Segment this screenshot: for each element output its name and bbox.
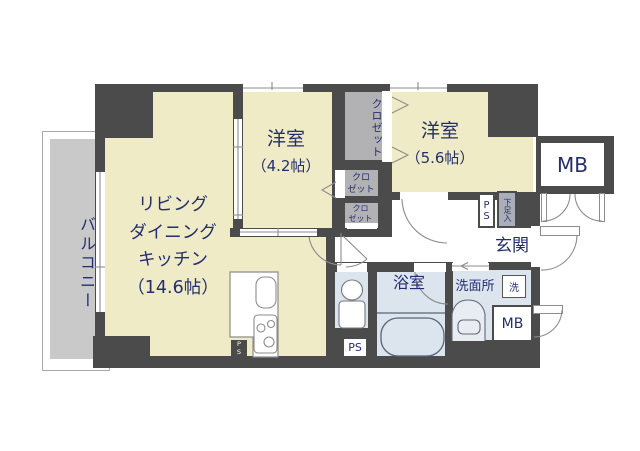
mb-top-label: MB xyxy=(557,153,588,177)
balcony-label: バルコニー xyxy=(51,183,95,343)
ps-entrance-p: P xyxy=(483,200,489,211)
mb-top-door-leaf-left xyxy=(541,193,547,222)
mb-bottom-door-leaf xyxy=(533,305,563,314)
wall-bath-washroom xyxy=(445,262,453,358)
bedroom-a-label: 洋室 （4.2帖） xyxy=(236,129,336,175)
mb-bottom-label: MB xyxy=(502,316,524,332)
ldk-line1: リビング xyxy=(92,192,254,220)
wall-top xyxy=(95,84,538,92)
ps-kitchen-label: P S xyxy=(231,341,247,356)
bedroom-b-label: 洋室 （5.6帖） xyxy=(388,121,492,167)
ldk-line3: キッチン xyxy=(92,247,254,275)
ldk-size: （14.6帖） xyxy=(92,275,254,303)
closet-bottom-label: クロ ゼット xyxy=(342,204,379,223)
wall-toilet-bath xyxy=(368,262,377,358)
window-bedroom-a xyxy=(243,84,303,92)
shoe-cabinet-label: 下足入 xyxy=(503,198,511,222)
door-gap-bath xyxy=(414,263,446,272)
door-gap-bedroom-b xyxy=(400,192,448,200)
slide-door-washroom xyxy=(452,263,489,271)
wall-topright-block xyxy=(488,84,538,137)
window-bedroom-b xyxy=(390,84,447,92)
mb-bottom-box: MB xyxy=(492,305,533,342)
ps-entrance-box: P S xyxy=(478,193,495,228)
entrance-door-leaf xyxy=(540,226,580,236)
wall-topleft-block xyxy=(95,84,153,138)
washroom-label: 洗面所 xyxy=(449,280,501,295)
entrance-label: 玄関 xyxy=(486,237,538,257)
closet-mid-label: クロ ゼット xyxy=(344,172,378,196)
shoe-cabinet-box: 下足入 xyxy=(497,191,517,228)
mb-top-box: MB xyxy=(541,143,604,186)
wall-bottom-washroom xyxy=(445,340,540,368)
mb-top-door-leaf-right xyxy=(599,193,605,222)
floorplan: MB P S 下足入 PS MB 洗 P S xyxy=(0,0,640,451)
ps-bath-label: PS xyxy=(348,341,362,354)
ps-entrance-s: S xyxy=(483,211,489,222)
washer-box: 洗 xyxy=(502,275,526,298)
bathroom-label: 浴室 xyxy=(383,274,435,292)
ldk-label: リビング ダイニング キッチン （14.6帖） xyxy=(92,192,254,302)
ldk-line2: ダイニング xyxy=(92,220,254,248)
closet-top-label: クロゼット xyxy=(343,95,382,160)
washer-label: 洗 xyxy=(509,279,519,294)
wall-shoebox-side xyxy=(515,192,538,228)
toilet-floor xyxy=(333,268,368,330)
door-gap-toilet xyxy=(337,263,367,272)
closet-bottom-door xyxy=(347,223,377,229)
wall-closet-right xyxy=(378,168,392,237)
wall-ps-side xyxy=(330,338,342,358)
wall-washroom-top xyxy=(488,262,533,270)
ps-bath-box: PS xyxy=(342,337,368,358)
